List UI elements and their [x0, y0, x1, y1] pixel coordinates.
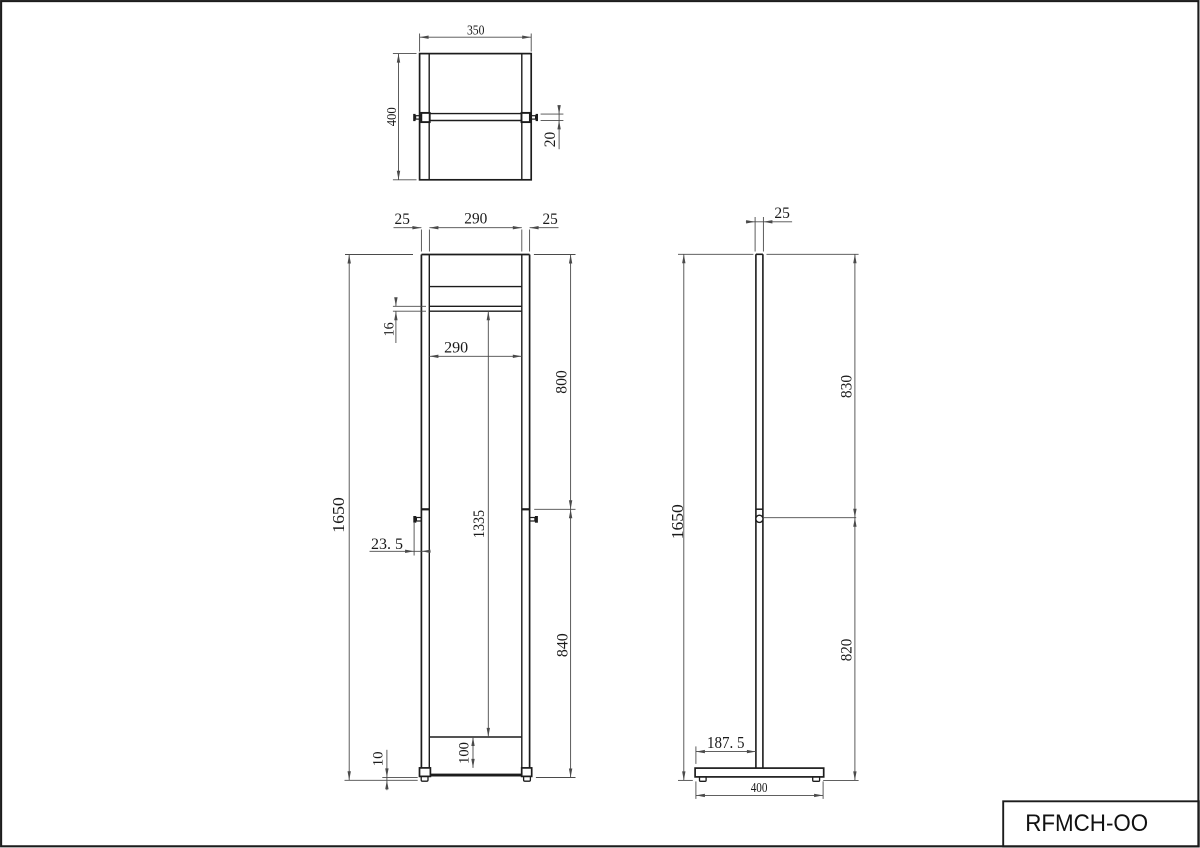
svg-text:16: 16 [381, 322, 397, 336]
svg-text:400: 400 [384, 107, 399, 126]
svg-text:820: 820 [839, 639, 856, 662]
svg-text:400: 400 [751, 780, 768, 795]
svg-text:840: 840 [554, 633, 571, 657]
svg-text:25: 25 [542, 211, 557, 228]
svg-text:100: 100 [456, 742, 472, 764]
svg-text:830: 830 [839, 375, 856, 398]
svg-text:1650: 1650 [329, 497, 348, 533]
svg-text:25: 25 [395, 211, 410, 228]
svg-text:290: 290 [464, 211, 487, 228]
svg-text:800: 800 [554, 370, 571, 394]
svg-text:25: 25 [774, 205, 790, 222]
svg-text:290: 290 [444, 339, 468, 356]
svg-text:20: 20 [542, 132, 559, 148]
svg-text:23. 5: 23. 5 [371, 536, 403, 553]
svg-text:187. 5: 187. 5 [707, 733, 745, 752]
svg-text:350: 350 [467, 23, 485, 38]
svg-text:10: 10 [371, 752, 387, 767]
svg-text:RFMCH-OO: RFMCH-OO [1025, 810, 1148, 837]
svg-text:1335: 1335 [471, 510, 488, 538]
svg-text:1650: 1650 [668, 504, 687, 539]
